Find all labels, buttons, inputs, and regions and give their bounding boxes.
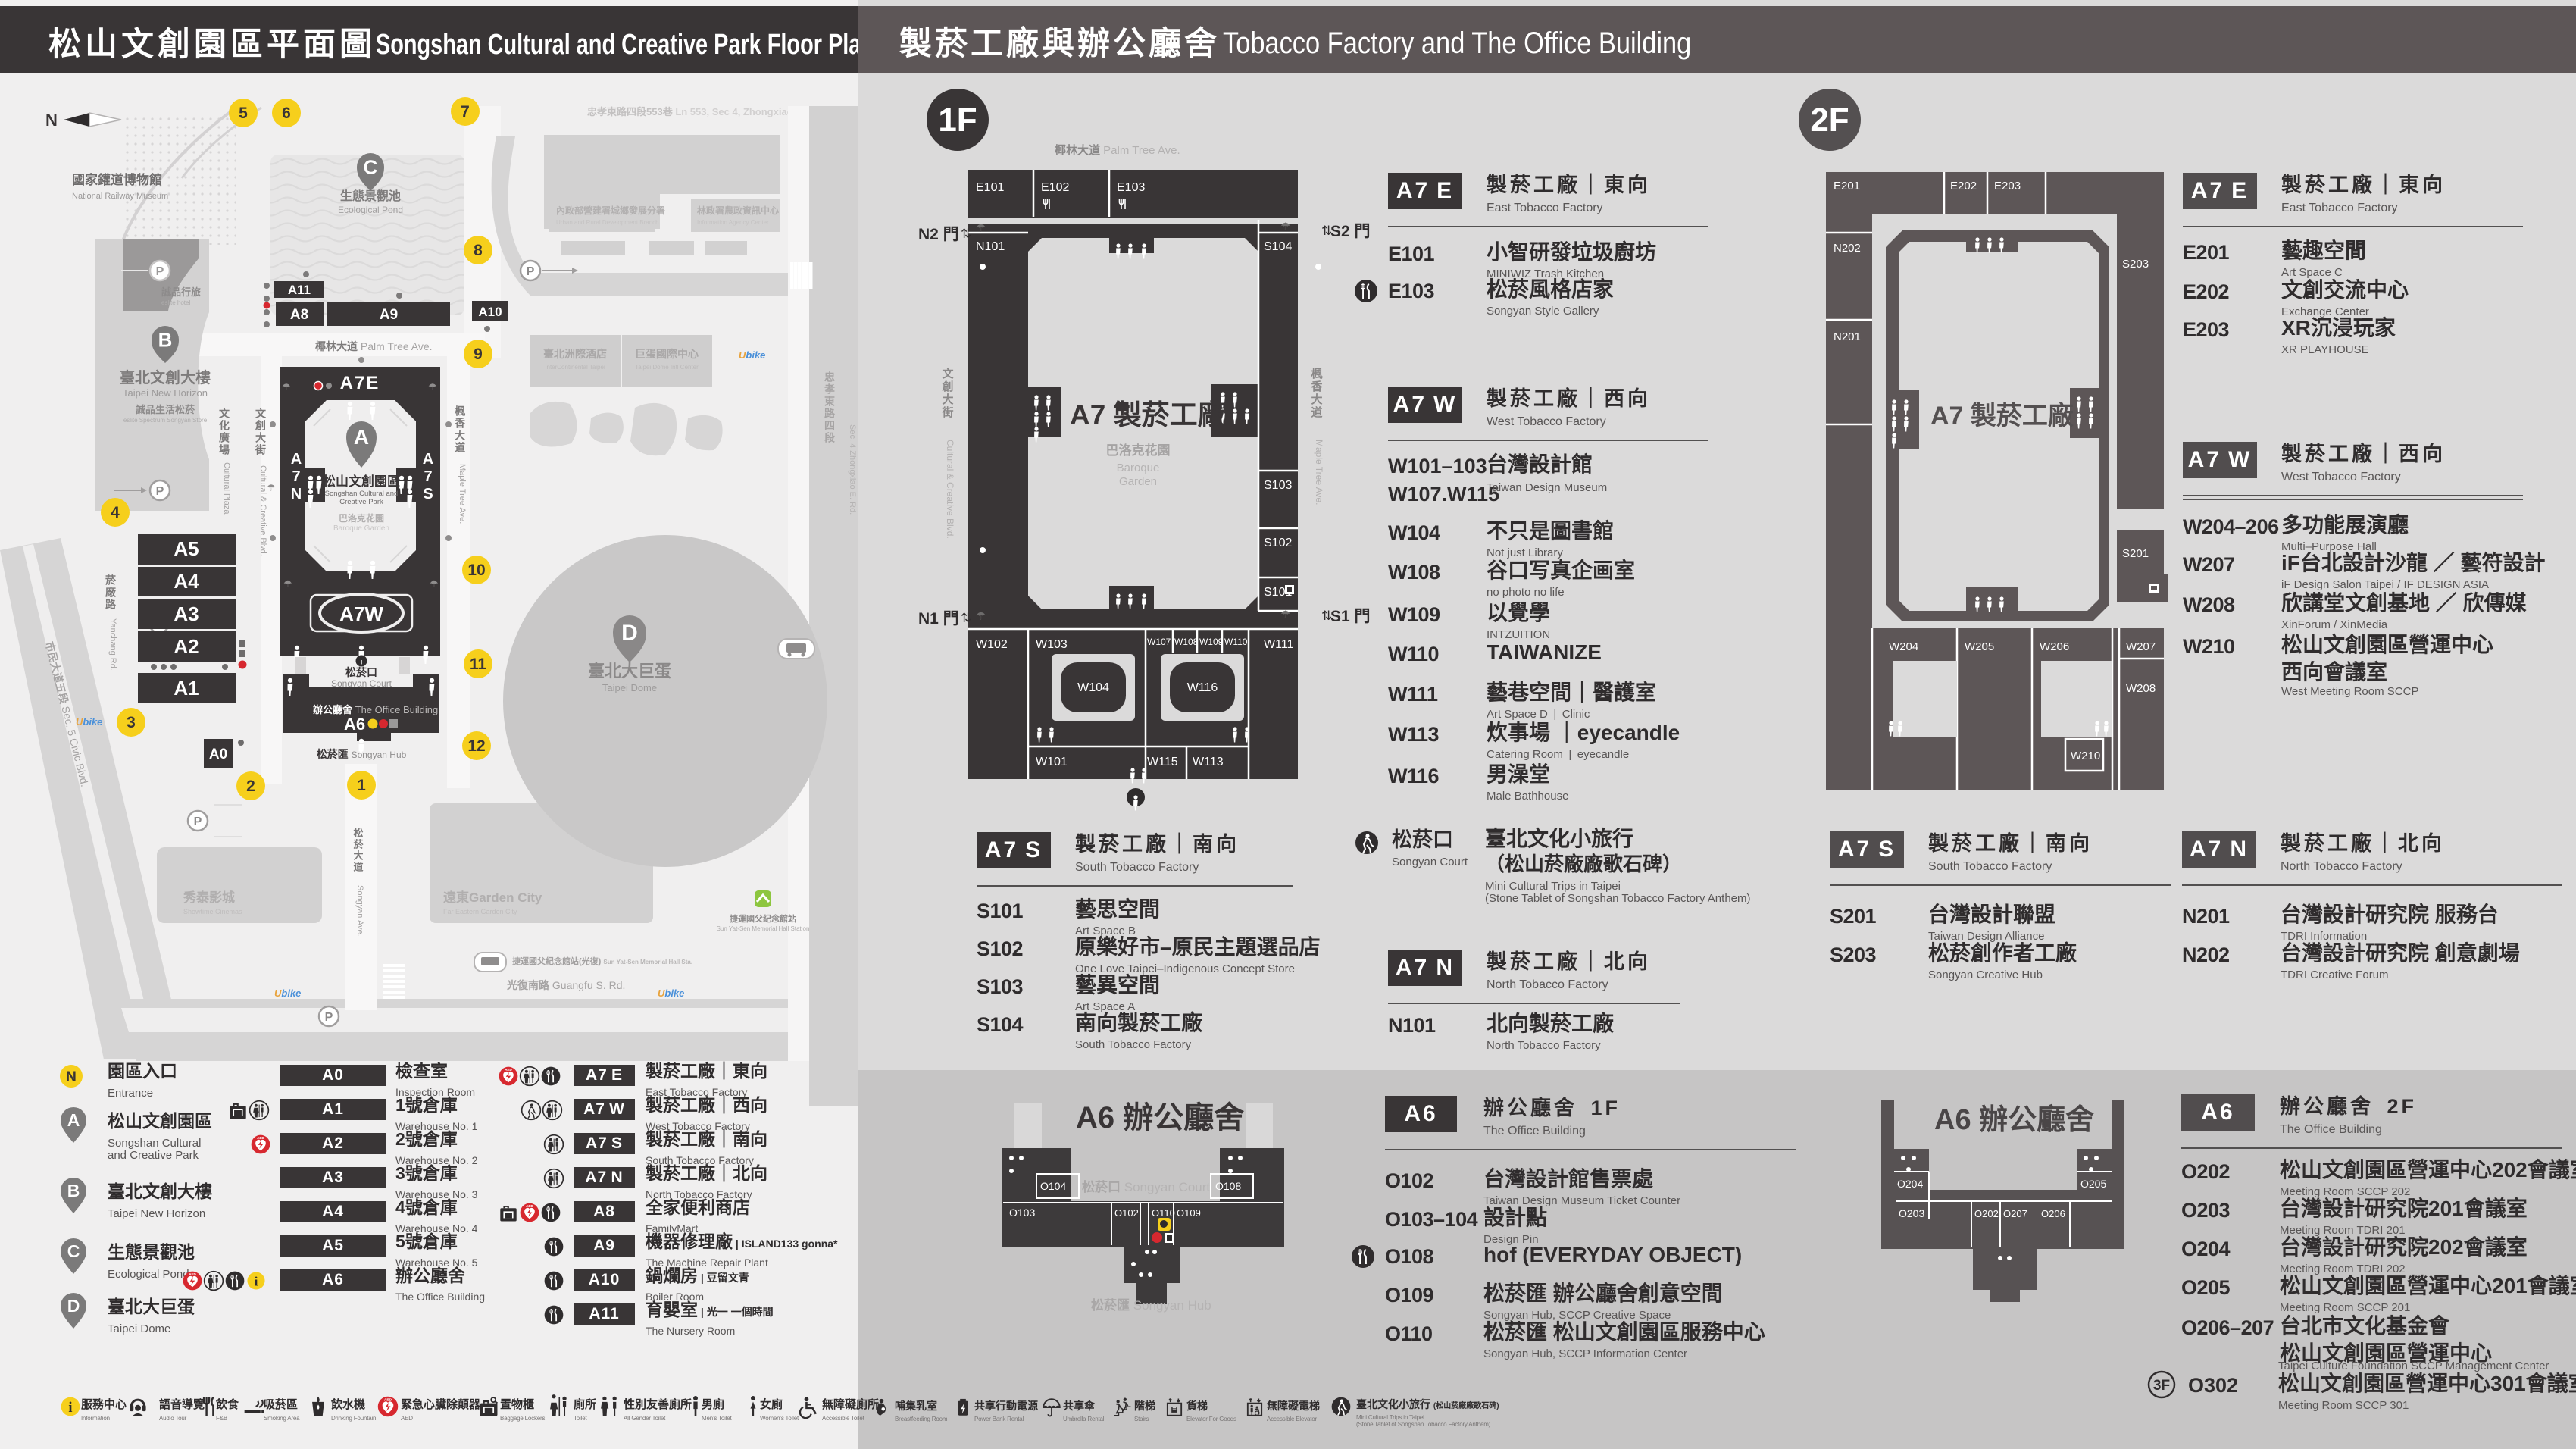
svg-text:N101: N101 [976,240,1005,253]
svg-text:Ubike: Ubike [274,987,301,999]
svg-text:1F: 1F [938,102,977,139]
svg-text:文創大街: 文創大街 [255,407,267,456]
svg-text:誠品生活松菸: 誠品生活松菸 [136,404,195,415]
svg-text:AED: AED [526,1204,533,1208]
svg-text:A11: A11 [288,283,311,297]
svg-text:eslite Spectrum Songyan Store: eslite Spectrum Songyan Store [123,417,208,424]
svg-text:文創大街: 文創大街 [941,367,955,419]
svg-text:松菸匯 Songyan Hub: 松菸匯 Songyan Hub [1091,1297,1211,1313]
svg-text:國家鑵道博物館: 國家鑵道博物館 [72,172,162,187]
svg-text:7: 7 [292,468,300,485]
svg-text:10: 10 [467,562,485,579]
svg-text:AED: AED [189,1272,196,1276]
svg-text:i: i [68,1400,72,1416]
svg-text:A8: A8 [290,307,308,323]
svg-text:A3: A3 [174,602,199,625]
svg-text:N1 門: N1 門 [918,610,959,627]
svg-text:2: 2 [246,778,255,795]
svg-text:S104: S104 [1264,240,1292,253]
svg-text:☂: ☂ [976,610,986,623]
svg-text:⇅: ⇅ [961,611,971,625]
svg-text:O205: O205 [2080,1178,2106,1190]
svg-text:AED: AED [384,1397,392,1402]
svg-text:W113: W113 [1193,756,1224,768]
svg-text:W115: W115 [1147,756,1178,768]
svg-text:5: 5 [239,105,248,122]
svg-text:i: i [255,1275,258,1289]
svg-text:菸廠路: 菸廠路 [105,574,117,611]
svg-text:2F: 2F [1810,102,1849,139]
svg-text:松菸匯 Songyan Hub: 松菸匯 Songyan Hub [317,748,407,760]
svg-text:⇅: ⇅ [961,227,971,241]
svg-text:Ubike: Ubike [76,716,102,728]
svg-text:E101: E101 [976,181,1004,194]
svg-text:椰林大道 Palm Tree Ave.: 椰林大道 Palm Tree Ave. [1055,143,1180,157]
svg-text:楓香大道: 楓香大道 [1310,367,1323,419]
svg-text:巴洛克花園: 巴洛克花園 [339,512,384,524]
svg-text:文化廣場: 文化廣場 [218,407,230,456]
svg-text:S2 門: S2 門 [1330,223,1371,240]
svg-text:A2: A2 [174,635,199,658]
svg-text:W101: W101 [1036,756,1068,768]
svg-text:A: A [423,451,433,468]
svg-text:W208: W208 [2126,682,2156,695]
svg-text:Creative Park: Creative Park [339,498,383,506]
svg-text:P: P [325,1011,333,1024]
svg-text:Songshan Cultural and: Songshan Cultural and [325,490,399,498]
svg-text:O109: O109 [1177,1207,1201,1219]
svg-text:A: A [291,451,302,468]
svg-text:4: 4 [111,504,120,521]
svg-text:11: 11 [470,656,487,673]
svg-text:S: S [423,486,433,502]
svg-text:Ecological Pond: Ecological Pond [338,205,403,215]
svg-text:Sun Yat-Sen Memorial Hall Stat: Sun Yat-Sen Memorial Hall Station [717,925,810,932]
svg-text:秀泰影城: 秀泰影城 [183,890,235,905]
svg-text:W207: W207 [2126,640,2156,653]
svg-text:Ubike: Ubike [658,987,684,999]
svg-text:N201: N201 [1834,330,1861,343]
svg-text:Cultural & Creative Blvd.: Cultural & Creative Blvd. [945,440,955,539]
svg-text:⇅: ⇅ [1321,609,1332,623]
svg-text:A7 製菸工廠: A7 製菸工廠 [1930,401,2074,430]
svg-text:☂: ☂ [267,482,276,493]
svg-text:Urban and Rural Development Br: Urban and Rural Development Branch [556,219,659,226]
svg-text:3: 3 [127,714,136,731]
svg-text:A: A [67,1110,80,1130]
svg-text:7: 7 [461,103,470,120]
svg-text:O203: O203 [1899,1207,1924,1219]
svg-text:A: A [354,425,369,449]
svg-text:☂: ☂ [1280,221,1290,233]
svg-text:S102: S102 [1264,537,1292,549]
svg-text:松山文創園區: 松山文創園區 [323,474,400,489]
svg-text:A9: A9 [380,307,398,323]
svg-text:AED: AED [505,1068,512,1072]
svg-text:⇅: ⇅ [1321,224,1332,238]
svg-text:Showtime Cinemas: Showtime Cinemas [183,908,242,915]
svg-text:A7E: A7E [340,373,380,393]
svg-text:Yanchang Rd.: Yanchang Rd. [108,618,117,671]
svg-text:3F: 3F [2153,1378,2170,1394]
svg-text:A6 辦公廳舍: A6 辦公廳舍 [1934,1104,2094,1136]
svg-text:O104: O104 [1040,1180,1066,1192]
svg-text:O108: O108 [1215,1180,1241,1192]
svg-text:O103: O103 [1009,1206,1035,1219]
svg-text:臺北洲際酒店: 臺北洲際酒店 [543,348,607,360]
svg-text:Baroque: Baroque [1117,462,1160,474]
svg-text:松菸大道: 松菸大道 [352,827,364,873]
svg-text:Taipei Dome: Taipei Dome [602,682,657,693]
svg-text:Garden: Garden [1119,475,1157,488]
svg-text:S1 門: S1 門 [1330,608,1371,625]
svg-text:W107: W107 [1147,637,1171,647]
svg-text:Maple Tree Ave.: Maple Tree Ave. [458,464,467,524]
svg-text:Ubike: Ubike [739,349,765,361]
svg-text:W110: W110 [1224,637,1248,647]
svg-text:B: B [67,1181,80,1200]
svg-text:P: P [156,265,164,278]
svg-text:Far Eastern Garden City: Far Eastern Garden City [443,908,517,915]
svg-text:InterContinental Taipei: InterContinental Taipei [545,364,605,371]
svg-text:O206: O206 [2041,1208,2065,1219]
svg-text:Taipei New Horizon: Taipei New Horizon [123,387,208,399]
svg-text:臺北文創大樓: 臺北文創大樓 [120,368,211,387]
svg-text:W108: W108 [1174,637,1199,647]
svg-text:N: N [45,111,58,130]
svg-text:巨蛋國際中心: 巨蛋國際中心 [635,348,699,360]
svg-text:☂: ☂ [282,381,291,393]
svg-text:Sec. 4 Zhongxiao E. Rd.: Sec. 4 Zhongxiao E. Rd. [848,424,857,515]
svg-text:9: 9 [474,346,483,363]
svg-text:S103: S103 [1264,479,1292,492]
svg-text:O110: O110 [1152,1207,1175,1219]
svg-text:D: D [621,621,638,646]
svg-text:C: C [364,155,378,178]
svg-text:W104: W104 [1077,681,1109,694]
svg-text:N2 門: N2 門 [918,226,959,243]
svg-text:楓香大道: 楓香大道 [454,405,466,454]
svg-text:A7 製菸工廠: A7 製菸工廠 [1070,399,1226,430]
svg-text:National Railway Museum: National Railway Museum [72,192,168,201]
svg-text:巴洛克花園: 巴洛克花園 [1106,443,1171,458]
svg-text:eslite hotel: eslite hotel [161,299,190,306]
svg-text:N: N [291,486,302,502]
svg-text:松菸口: 松菸口 [345,666,377,678]
svg-text:A7W: A7W [339,602,383,625]
svg-text:C: C [67,1241,80,1261]
svg-text:W205: W205 [1965,640,1994,653]
svg-text:E102: E102 [1041,181,1069,194]
svg-text:W204: W204 [1889,640,1918,653]
svg-text:Taipei Dome Intl Center: Taipei Dome Intl Center [635,364,699,371]
svg-text:S201: S201 [2122,547,2149,560]
svg-text:1: 1 [357,777,366,794]
svg-text:N: N [66,1069,77,1085]
svg-text:P: P [156,485,164,498]
svg-text:8: 8 [474,242,483,259]
svg-text:W210: W210 [2071,750,2100,762]
svg-text:☂: ☂ [283,578,292,590]
svg-text:生態景觀池: 生態景觀池 [340,189,401,203]
svg-text:12: 12 [467,737,485,755]
svg-text:P: P [194,815,202,828]
svg-text:內政部營建署城鄉發展分署: 內政部營建署城鄉發展分署 [556,205,665,216]
svg-text:捷運國父紀念館站: 捷運國父紀念館站 [730,913,796,924]
svg-text:D: D [67,1296,80,1316]
svg-text:☂: ☂ [428,381,437,393]
svg-text:O202: O202 [1974,1208,1999,1219]
svg-text:O102: O102 [1114,1207,1139,1219]
svg-text:Maple Tree Ave.: Maple Tree Ave. [1314,440,1324,505]
svg-text:☂: ☂ [1280,609,1290,621]
svg-text:A1: A1 [174,677,199,699]
svg-text:A5: A5 [174,537,199,560]
svg-text:Songyan Ave.: Songyan Ave. [355,885,364,937]
svg-text:辦公廳舍 The Office Building: 辦公廳舍 The Office Building [313,704,438,715]
svg-text:誠品行旅: 誠品行旅 [161,286,201,298]
svg-text:林政署農政資訊中心: 林政署農政資訊中心 [697,205,779,216]
svg-text:P: P [527,265,535,278]
svg-text:W111: W111 [1264,638,1294,651]
svg-text:W102: W102 [976,638,1008,651]
svg-text:W103: W103 [1036,638,1068,651]
svg-text:光復南路 Guangfu S. Rd.: 光復南路 Guangfu S. Rd. [506,979,625,991]
svg-text:E201: E201 [1834,180,1860,192]
svg-text:B: B [158,328,173,351]
svg-text:W109: W109 [1199,637,1224,647]
svg-text:松菸口 Songyan Court: 松菸口 Songyan Court [1082,1179,1210,1194]
svg-text:A6 辦公廳舍: A6 辦公廳舍 [1076,1100,1244,1134]
svg-text:捷運國父紀念館站(光復) Sun Yat-Sen Memor: 捷運國父紀念館站(光復) Sun Yat-Sen Memorial Hall S… [512,956,692,966]
svg-text:☂: ☂ [430,578,439,590]
svg-text:忠孝東路四段: 忠孝東路四段 [824,371,836,444]
svg-text:W116: W116 [1187,681,1218,694]
svg-text:☂: ☂ [976,222,986,235]
svg-text:A0: A0 [209,746,227,762]
svg-text:E202: E202 [1950,180,1977,192]
svg-text:E103: E103 [1117,181,1145,194]
svg-text:Baroque Garden: Baroque Garden [333,524,389,533]
svg-text:O207: O207 [2003,1208,2027,1219]
svg-text:AED: AED [257,1136,264,1140]
svg-text:W206: W206 [2040,640,2069,653]
svg-text:臺北大巨蛋: 臺北大巨蛋 [588,662,671,681]
svg-text:E203: E203 [1994,180,2021,192]
svg-text:A6: A6 [344,715,365,734]
svg-text:Cultural Plaza: Cultural Plaza [222,462,231,515]
svg-text:N202: N202 [1834,242,1861,255]
svg-text:Information Agency Center: Information Agency Center [697,219,769,226]
svg-text:6: 6 [282,105,291,122]
svg-text:S203: S203 [2122,258,2149,271]
svg-text:A4: A4 [174,570,199,593]
svg-text:Cultural & Creative Blvd.: Cultural & Creative Blvd. [258,465,267,556]
svg-text:i: i [361,659,363,667]
svg-text:A10: A10 [478,305,502,319]
svg-text:椰林大道 Palm Tree Ave.: 椰林大道 Palm Tree Ave. [315,340,433,352]
svg-text:O204: O204 [1897,1178,1923,1190]
svg-text:遠東Garden City: 遠東Garden City [443,890,542,905]
svg-text:7: 7 [424,468,432,485]
